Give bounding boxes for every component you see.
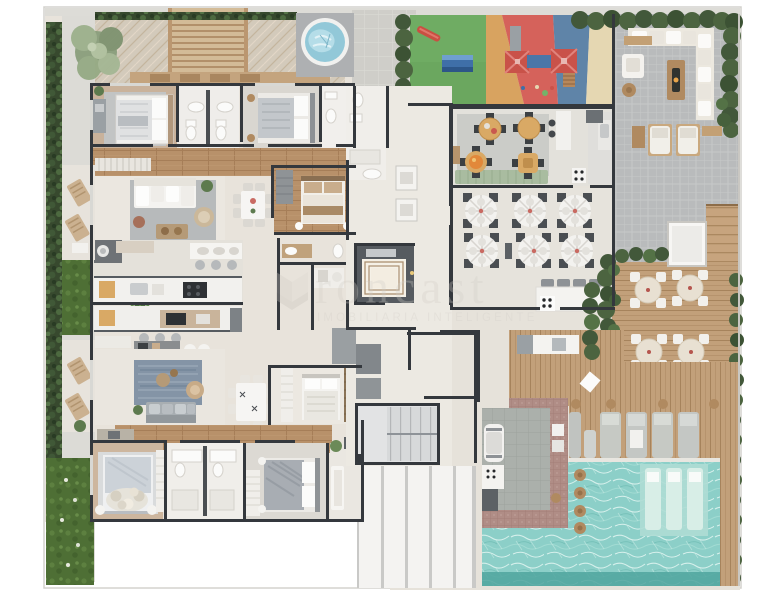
svg-text:IMOBILIARIA INTELIGENTE: IMOBILIARIA INTELIGENTE [317,312,538,324]
svg-text:roncast: roncast [315,261,489,314]
